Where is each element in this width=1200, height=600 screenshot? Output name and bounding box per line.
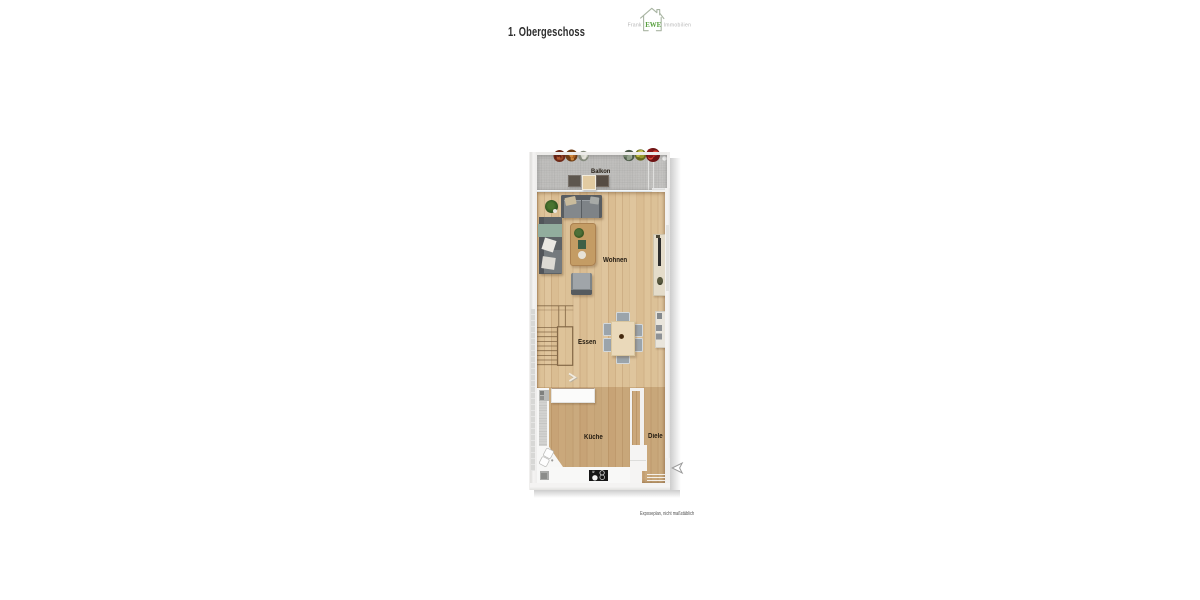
svg-text:EWE: EWE bbox=[645, 22, 661, 29]
svg-text:Immobilien: Immobilien bbox=[664, 23, 692, 29]
svg-text:Frank: Frank bbox=[628, 23, 642, 29]
